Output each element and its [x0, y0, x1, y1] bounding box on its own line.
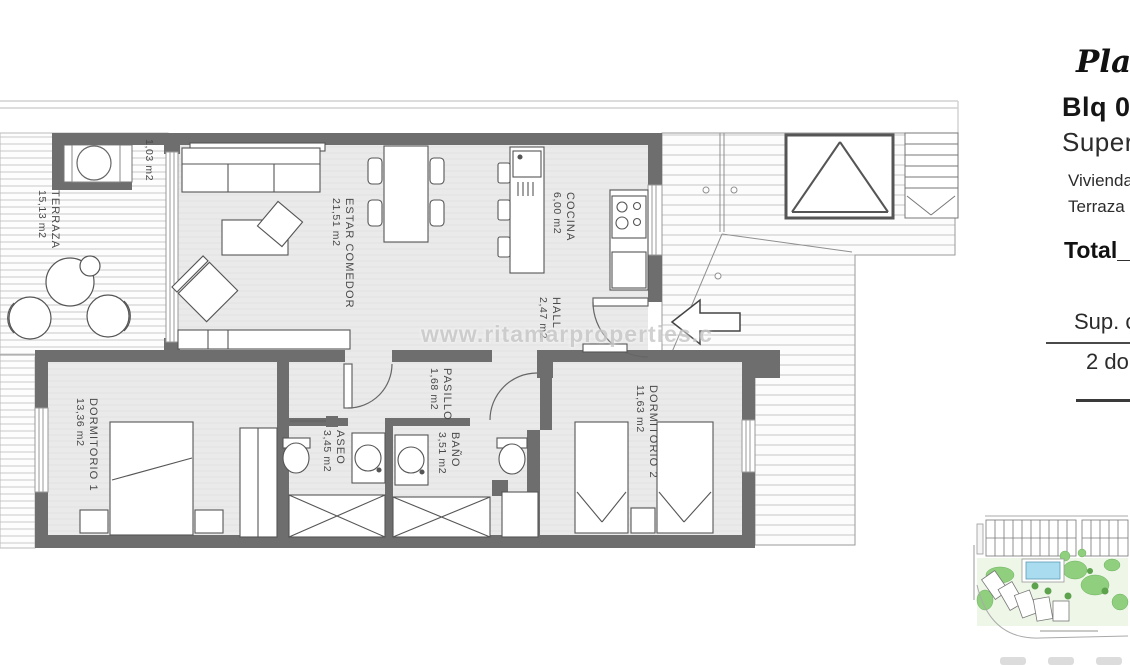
svg-text:1,68 m2: 1,68 m2	[428, 368, 440, 410]
svg-text:PASILLO: PASILLO	[441, 368, 453, 421]
svg-text:21,51 m2: 21,51 m2	[330, 198, 342, 247]
svg-text:DORMITORIO 2: DORMITORIO 2	[647, 385, 659, 479]
svg-text:TERRAZA: TERRAZA	[49, 190, 61, 249]
plot-boundary	[0, 101, 958, 133]
label-storage: 1,03 m2	[143, 139, 155, 181]
site-buildings-top	[986, 520, 1128, 556]
svg-text:1,03 m2: 1,03 m2	[143, 139, 155, 181]
svg-text:ASEO: ASEO	[334, 430, 346, 465]
svg-text:11,63 m2: 11,63 m2	[634, 385, 646, 433]
site-plan-map	[973, 516, 1128, 638]
panel-divider-line-2	[1076, 399, 1130, 402]
site-pool	[1026, 562, 1060, 579]
panel-superficie: Superfi	[1062, 127, 1130, 158]
label-cocina: COCINA 6,00 m2	[551, 192, 576, 241]
elevator-shaft	[786, 135, 893, 218]
stairs	[905, 133, 958, 218]
svg-text:13,36 m2: 13,36 m2	[74, 398, 86, 447]
panel-vivienda: Vivienda	[1068, 171, 1130, 191]
svg-text:3,51 m2: 3,51 m2	[436, 432, 448, 474]
svg-text:COCINA: COCINA	[564, 192, 576, 241]
svg-text:DORMITORIO 1: DORMITORIO 1	[87, 398, 99, 492]
svg-text:6,00 m2: 6,00 m2	[551, 192, 563, 234]
bedroom1-furniture	[80, 422, 277, 537]
svg-text:ESTAR COMEDOR: ESTAR COMEDOR	[343, 198, 355, 309]
panel-sup-construida: Sup. co	[1074, 309, 1130, 335]
panel-block: Blq 03	[1062, 92, 1130, 123]
floorplan-page: TERRAZA 15,13 m2 1,03 m2 ESTAR COMEDOR 2…	[0, 0, 1130, 665]
svg-text:BAÑO: BAÑO	[449, 432, 462, 468]
panel-planta: Planta	[1076, 44, 1130, 80]
panel-total: Total_	[1064, 237, 1130, 264]
site-caption-mark	[1040, 630, 1098, 632]
panel-terraza: Terraza	[1068, 197, 1125, 217]
bottom-edge-graphics	[1000, 657, 1122, 665]
panel-bedrooms: 2 do	[1086, 349, 1129, 375]
site-side-mark	[973, 545, 975, 600]
svg-text:15,13 m2: 15,13 m2	[36, 190, 48, 239]
watermark: www.ritamarproperties.c	[421, 321, 713, 348]
svg-text:3,45 m2: 3,45 m2	[321, 430, 333, 472]
panel-divider-line	[1046, 342, 1130, 344]
